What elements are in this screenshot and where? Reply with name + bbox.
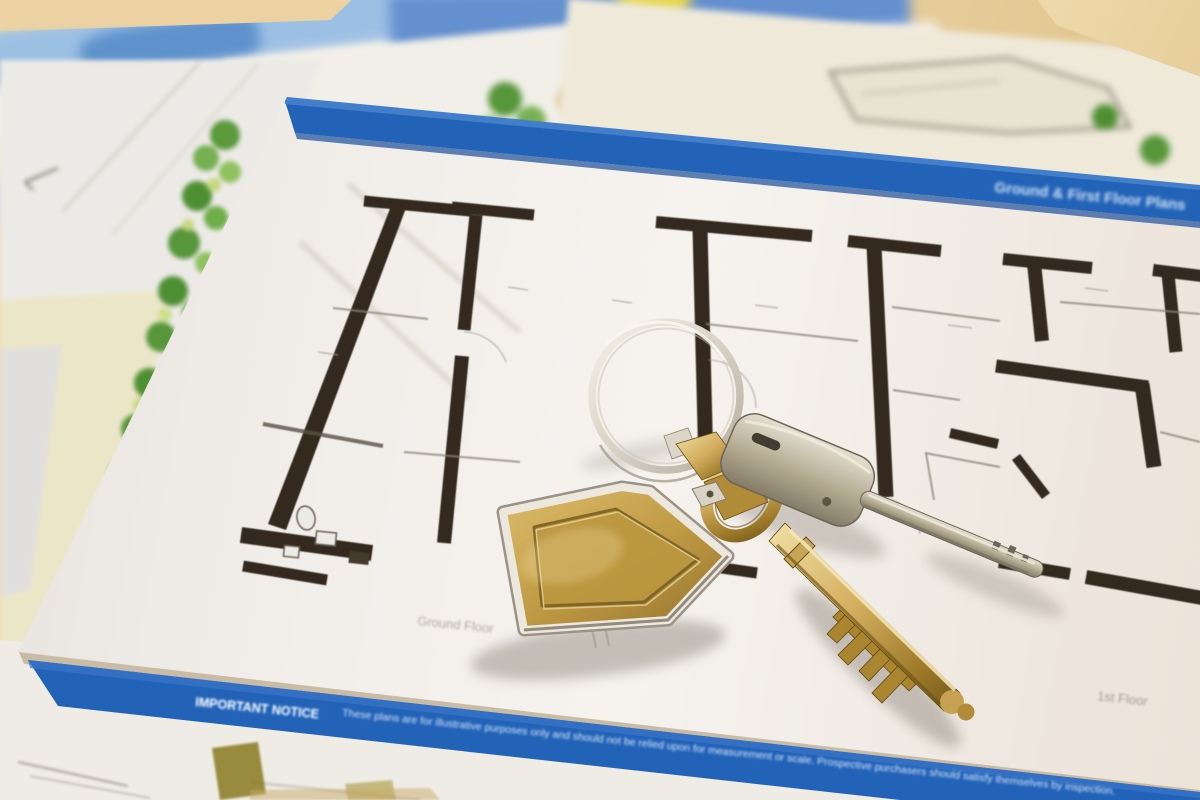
photo-canvas: IMPORTANT NOTICE These plans are for ill… (0, 0, 1200, 800)
house-fob (503, 482, 728, 630)
silver-key-highlight (868, 495, 1034, 564)
keys-group (0, 0, 1200, 800)
fob-tab-hole (707, 491, 714, 498)
